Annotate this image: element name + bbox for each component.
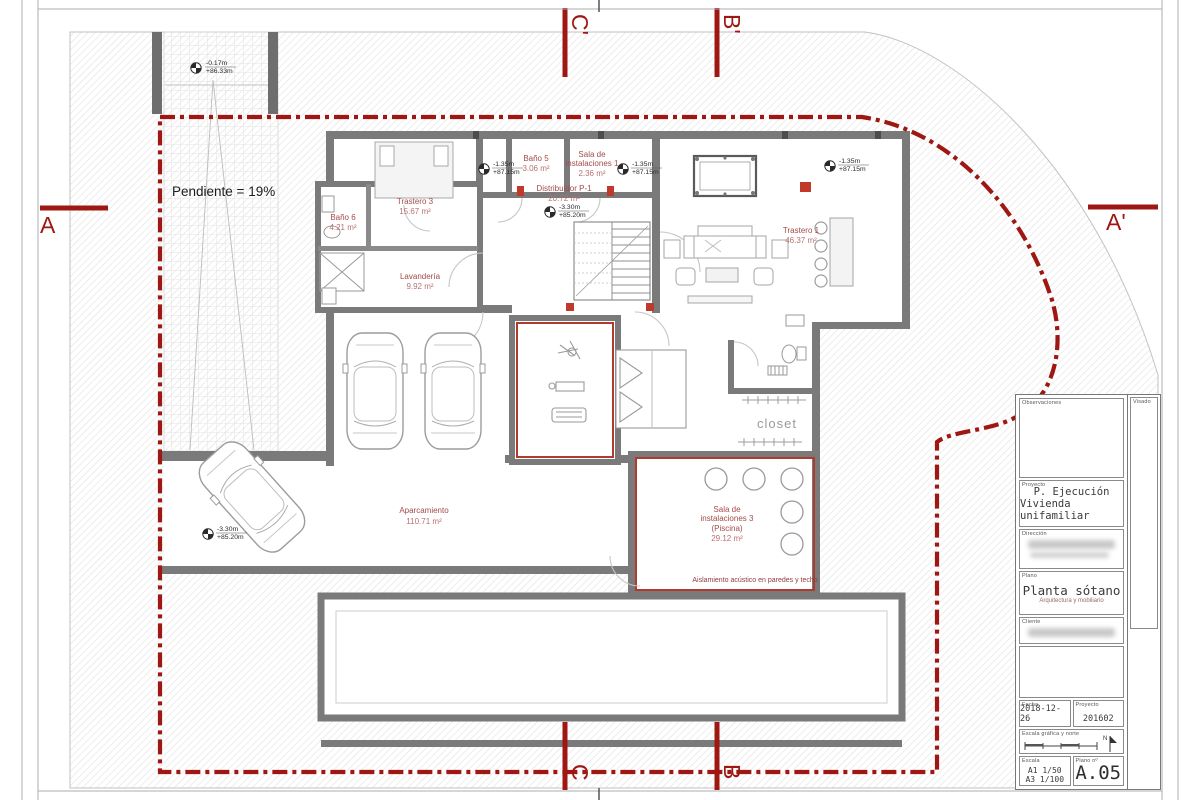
redacted-text (1030, 552, 1109, 558)
address-box: Dirección (1019, 529, 1124, 569)
svg-text:+85.20m: +85.20m (217, 534, 244, 541)
svg-text:N: N (1103, 736, 1107, 742)
room-area-trastero1: 46.37 m² (785, 236, 817, 245)
sheet-title: Planta sótano (1023, 583, 1121, 598)
car-icon (343, 333, 407, 449)
svg-text:-1.35m: -1.35m (632, 161, 653, 168)
address-label: Dirección (1022, 531, 1047, 537)
svg-text:+86.33m: +86.33m (206, 68, 233, 75)
project-number-box: Proyecto 201602 (1073, 700, 1125, 727)
room-label-lavanderia: Lavandería (400, 272, 441, 281)
bed-icon-bedroom (616, 350, 686, 428)
client-box: Cliente (1019, 617, 1124, 644)
acoustic-note: Aislamiento acústico en paredes y techo (692, 577, 817, 584)
stairs-icon (574, 222, 650, 300)
svg-text:+87.15m: +87.15m (493, 169, 520, 176)
room-label-sala3-l3: (Piscina) (711, 524, 742, 533)
svg-text:-0.17m: -0.17m (206, 60, 227, 67)
project-box: Proyecto P. Ejecución Vivienda unifamili… (1019, 480, 1124, 527)
graphic-scale-box: Escala gráfica y norte N (1019, 729, 1124, 754)
sheet-name-box: Plano Planta sótano Arquitectura y mobil… (1019, 571, 1124, 615)
section-label-b: B (719, 764, 745, 779)
room-label-bano5: Baño 5 (523, 154, 549, 163)
scale-a1: A1 1/50 (1028, 766, 1062, 775)
visa-label: Visado (1133, 399, 1151, 405)
closet-label: closet (757, 416, 797, 431)
title-block: Observaciones Proyecto P. Ejecución Vivi… (1015, 394, 1161, 790)
room-area-aparcamiento: 110.71 m² (406, 517, 442, 526)
room-label-trastero3: Trastero 3 (397, 197, 434, 206)
svg-text:+85.20m: +85.20m (559, 212, 586, 219)
svg-text:+87.15m: +87.15m (839, 166, 866, 173)
room-label-bano6: Baño 6 (330, 213, 356, 222)
car-icon (421, 333, 485, 449)
room-label-aparcamiento: Aparcamiento (399, 506, 449, 515)
room-area-lavanderia: 9.92 m² (406, 282, 433, 291)
room-area-sala1: 2.36 m² (578, 169, 605, 178)
scale-a3: A3 1/100 (1025, 775, 1064, 784)
svg-text:+87.15m: +87.15m (632, 169, 659, 176)
section-label-c-prime: C' (567, 14, 593, 35)
pool-table-icon (694, 156, 756, 196)
bed-icon-trastero3 (375, 142, 453, 198)
section-label-a: A (40, 212, 56, 238)
project-label: Proyecto (1022, 482, 1045, 488)
north-arrow-icon: N (1103, 736, 1117, 752)
sheet-number-box: Plano nº A.05 (1073, 756, 1125, 786)
empty-box (1019, 646, 1124, 698)
section-label-c: C (567, 764, 593, 781)
sheet-name-label: Plano (1022, 573, 1037, 579)
room-label-sala1-l2: instalaciones 1 (566, 159, 619, 168)
pendiente-label: Pendiente = 19% (172, 184, 275, 199)
bar-counter-icon (815, 218, 853, 287)
project-number-label: Proyecto (1076, 702, 1099, 708)
room-area-bano6: 4.21 m² (329, 223, 356, 232)
room-label-sala3: Sala de (713, 505, 741, 514)
room-area-bano5: 3.06 m² (522, 164, 549, 173)
room-area-sala3: 29.12 m² (711, 534, 743, 543)
svg-text:-1.35m: -1.35m (493, 161, 514, 168)
svg-text:-3.30m: -3.30m (559, 204, 580, 211)
project-title-line2: Vivienda unifamiliar (1020, 498, 1123, 522)
date-box: Fecha 2018-12-26 (1019, 700, 1071, 727)
room-area-trastero3: 15.67 m² (399, 207, 431, 216)
sheet-number-label: Plano nº (1076, 758, 1098, 764)
svg-text:-3.30m: -3.30m (217, 526, 238, 533)
svg-text:-1.35m: -1.35m (839, 158, 860, 165)
room-label-sala1: Sala de (578, 150, 606, 159)
room-label-distribuidor: Distribuidor P-1 (536, 184, 592, 193)
sheet-subtitle: Arquitectura y mobiliario (1039, 598, 1103, 604)
graphic-scale-icon: N (1021, 732, 1122, 754)
observations-box: Observaciones (1019, 398, 1124, 478)
redacted-text (1028, 628, 1115, 637)
room-label-trastero1: Trastero 1 (783, 226, 820, 235)
visa-box: Visado (1130, 397, 1158, 629)
drawing-sheet: A A' C' B' C B -0.17m+86.33m -1.35m+87.1… (0, 0, 1200, 800)
section-label-b-prime: B' (719, 14, 745, 34)
room-area-distribuidor: 20.72 m² (548, 194, 580, 203)
project-number-value: 201602 (1083, 714, 1114, 724)
scale-label: Escala (1022, 758, 1040, 764)
section-label-a-prime: A' (1106, 209, 1126, 235)
room-label-sala3-l2: instalaciones 3 (701, 514, 754, 523)
redacted-text (1028, 540, 1115, 549)
scale-box: Escala A1 1/50 A3 1/100 (1019, 756, 1071, 786)
date-label: Fecha (1022, 702, 1038, 708)
visa-column: Visado (1127, 395, 1160, 789)
gym-room (512, 318, 618, 462)
observations-label: Observaciones (1022, 400, 1061, 406)
client-label: Cliente (1022, 619, 1041, 625)
sheet-number-value: A.05 (1075, 762, 1121, 784)
